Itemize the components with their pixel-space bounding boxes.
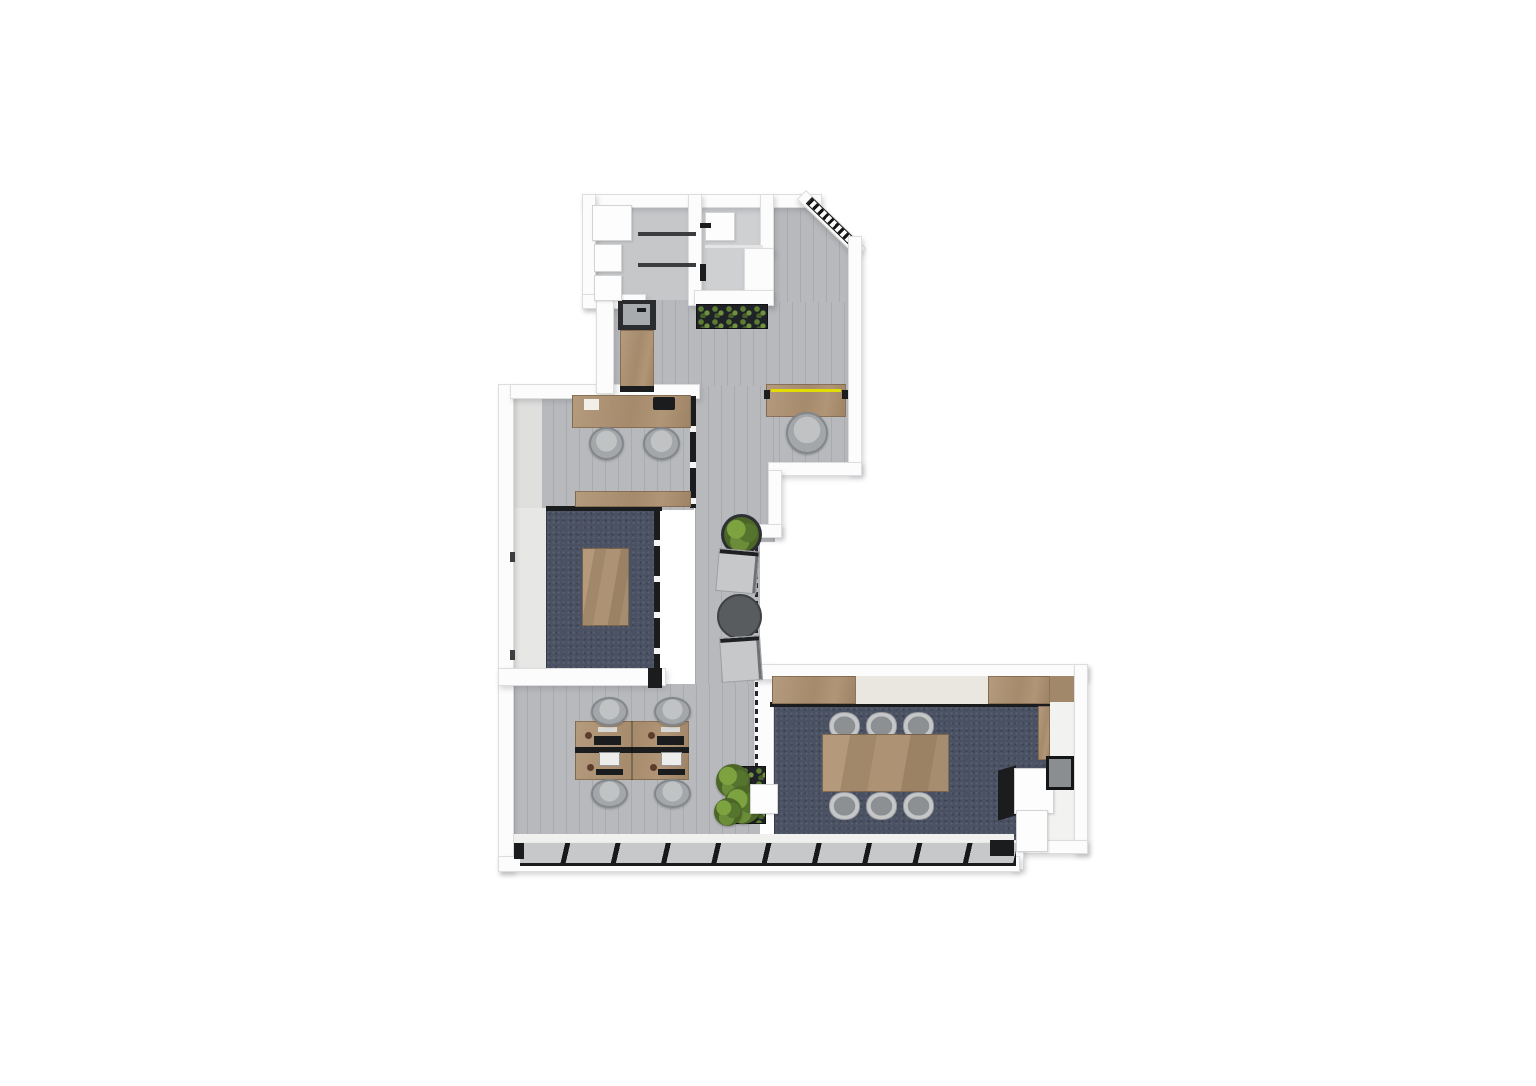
entry-planter-box — [696, 304, 768, 329]
workstation-accent-2 — [648, 732, 655, 739]
utility-counter-line-2 — [638, 263, 696, 267]
meeting-corner-glass — [648, 668, 662, 688]
workstation-monitor-br — [661, 752, 682, 766]
wall-meeting-bottom — [498, 668, 666, 686]
workstation-divider — [631, 721, 633, 780]
conference-chair-4 — [829, 792, 860, 820]
workstation-keyboard-tl — [598, 727, 617, 732]
office-chair-1 — [589, 427, 624, 460]
closet-shelf-3 — [594, 275, 622, 301]
workstation-chair-4 — [654, 779, 691, 808]
conference-wood-panel-1 — [772, 676, 856, 704]
kitchen-cabinet — [620, 330, 654, 388]
conference-table — [822, 734, 949, 792]
workstation-monitor-tr — [657, 736, 684, 745]
lounge-armchair-2 — [719, 635, 763, 683]
wall-left — [498, 384, 514, 872]
wall-step-vertical — [596, 298, 614, 394]
office-chair-2 — [643, 427, 680, 460]
closet-shelf-2 — [594, 244, 622, 272]
workstation-accent-1 — [585, 732, 592, 739]
workstation-chair-3 — [591, 779, 628, 808]
reception-desk-accent-stripe — [771, 389, 841, 392]
office-wall-face — [514, 398, 542, 508]
closet-shelf-1 — [592, 205, 632, 241]
floor-plan — [0, 0, 1536, 1086]
workstation-monitor-tl — [594, 736, 621, 745]
meeting-room-sill — [514, 508, 548, 672]
reception-desk-cap-right — [842, 390, 848, 399]
conference-counter-return — [1016, 810, 1048, 852]
office-credenza — [575, 491, 691, 507]
conference-chair-6 — [903, 792, 934, 820]
conference-wood-panel-2 — [988, 676, 1050, 704]
meeting-table — [582, 548, 629, 626]
kitchen-cabinet-end — [620, 386, 654, 392]
workstation-accent-3 — [587, 764, 594, 771]
conference-wood-panel-3 — [1050, 676, 1074, 702]
lounge-armchair-1 — [715, 548, 760, 594]
conference-sideboard — [1038, 706, 1050, 760]
workstation-keyboard-bl — [596, 769, 623, 775]
conference-cream-panel — [856, 676, 988, 704]
reception-chair — [786, 412, 828, 454]
window-corner-dark-right — [990, 840, 1014, 856]
structural-column — [750, 784, 778, 814]
meeting-glass-wall — [654, 510, 660, 672]
window-corner-dark-left — [514, 843, 524, 859]
wall-step-horizontal — [768, 462, 862, 476]
conference-chair-5 — [866, 792, 897, 820]
wall-right-upper — [848, 236, 862, 474]
reception-desk-cap-left — [764, 390, 770, 399]
open-space-plant-3 — [714, 798, 742, 826]
workstation-chair-1 — [591, 697, 628, 726]
left-wall-frame-tick-2 — [510, 650, 515, 660]
workstation-monitor-bl — [599, 752, 620, 766]
office-desk-laptop — [653, 397, 675, 410]
kitchen-faucet — [637, 308, 646, 312]
workstation-keyboard-tr — [661, 727, 680, 732]
window-band-south — [520, 842, 1016, 866]
conference-glass-cabinet — [1046, 756, 1074, 790]
utility-counter-line-1 — [638, 232, 696, 236]
left-wall-frame-tick-1 — [510, 552, 515, 562]
lounge-plant — [724, 517, 759, 552]
office-desk-paper — [584, 399, 599, 410]
bathroom-door-mark-1 — [700, 223, 711, 228]
bathroom-shelf-line — [705, 245, 763, 248]
workstation-chair-2 — [654, 697, 691, 726]
bathroom-door-mark-2 — [700, 264, 706, 281]
wall-conference-right — [1074, 664, 1088, 854]
workstation-accent-4 — [650, 764, 657, 771]
workstation-keyboard-br — [658, 769, 685, 775]
lounge-coffee-table — [717, 594, 762, 639]
